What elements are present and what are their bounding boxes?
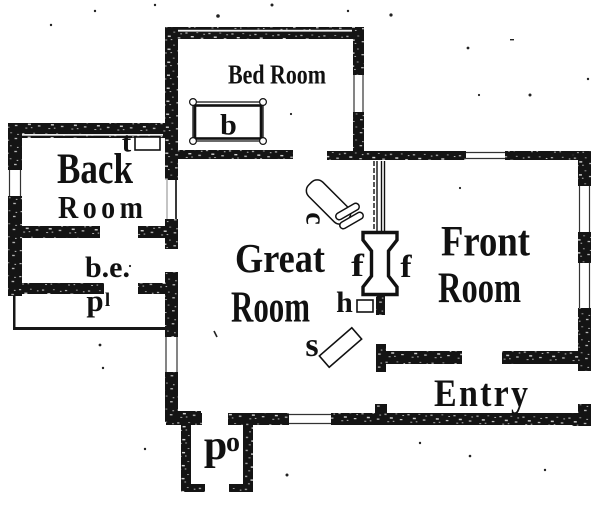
- svg-text:h: h: [336, 286, 353, 319]
- svg-text:Room: Room: [438, 262, 521, 311]
- svg-text:b: b: [220, 109, 237, 142]
- svg-text:p: p: [204, 423, 227, 469]
- svg-text:f: f: [400, 250, 412, 285]
- svg-text:Great: Great: [235, 236, 325, 281]
- svg-text:Room: Room: [231, 282, 310, 331]
- svg-text:p: p: [86, 283, 103, 318]
- svg-text:c: c: [300, 212, 331, 224]
- svg-text:t: t: [122, 128, 132, 159]
- svg-text:Bed Room: Bed Room: [228, 61, 326, 90]
- svg-text:o: o: [226, 427, 240, 458]
- svg-text:b.e.: b.e.: [85, 251, 130, 284]
- svg-text:f: f: [351, 248, 365, 283]
- svg-text:s: s: [305, 327, 318, 364]
- svg-text:Room: Room: [58, 190, 143, 225]
- svg-text:Front: Front: [441, 216, 530, 265]
- svg-text:l: l: [105, 290, 110, 311]
- svg-text:Entry: Entry: [434, 371, 528, 415]
